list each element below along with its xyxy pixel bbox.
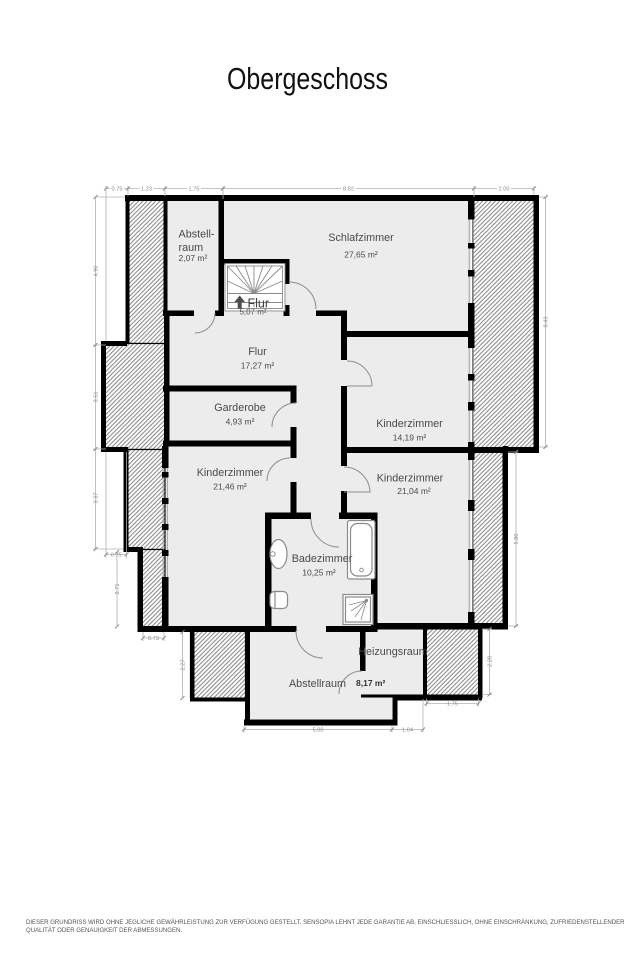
svg-text:8,17 m²: 8,17 m² [356, 678, 385, 688]
svg-text:Flur: Flur [248, 346, 267, 358]
svg-text:0.75: 0.75 [111, 553, 122, 559]
svg-text:17,27 m²: 17,27 m² [241, 361, 275, 371]
svg-text:2.27: 2.27 [181, 660, 187, 671]
svg-text:27,65 m²: 27,65 m² [344, 250, 378, 260]
svg-text:0.75: 0.75 [112, 187, 123, 193]
svg-text:5.00: 5.00 [313, 728, 324, 734]
svg-text:2.71: 2.71 [115, 584, 121, 595]
svg-text:Garderobe: Garderobe [214, 402, 266, 414]
svg-text:1.75: 1.75 [447, 702, 458, 708]
svg-text:14,19 m²: 14,19 m² [393, 433, 427, 443]
svg-text:Kinderzimmer: Kinderzimmer [197, 467, 264, 479]
svg-text:1.23: 1.23 [141, 187, 152, 193]
svg-text:Abstellraum: Abstellraum [289, 678, 346, 690]
svg-text:1.75: 1.75 [189, 187, 200, 193]
svg-text:5.80: 5.80 [514, 534, 520, 545]
svg-text:4.90: 4.90 [94, 266, 100, 277]
svg-text:Kinderzimmer: Kinderzimmer [377, 473, 444, 485]
svg-text:8.43: 8.43 [544, 317, 550, 328]
svg-text:21,04 m²: 21,04 m² [397, 486, 431, 496]
svg-text:5,07 m²: 5,07 m² [239, 308, 266, 317]
svg-text:2.00: 2.00 [499, 187, 510, 193]
svg-text:Abstell-: Abstell- [179, 229, 215, 241]
svg-text:Schlafzimmer: Schlafzimmer [328, 232, 394, 244]
svg-text:Badezimmer: Badezimmer [292, 553, 353, 565]
svg-text:0.73: 0.73 [148, 636, 159, 642]
svg-text:Heizungsraum: Heizungsraum [358, 646, 428, 658]
svg-text:QUALITÄT ODER GENAUIGKEIT DER: QUALITÄT ODER GENAUIGKEIT DER ABMESSUNGE… [26, 927, 182, 934]
svg-text:4,93 m²: 4,93 m² [226, 417, 255, 427]
svg-text:DIESER GRUNDRISS WIRD OHNE JEG: DIESER GRUNDRISS WIRD OHNE JEGLICHE GEWÄ… [26, 919, 625, 926]
svg-text:21,46 m²: 21,46 m² [213, 482, 247, 492]
svg-text:3.51: 3.51 [94, 392, 100, 403]
svg-text:8.82: 8.82 [343, 187, 354, 193]
svg-text:2,07 m²: 2,07 m² [179, 253, 208, 263]
svg-text:Kinderzimmer: Kinderzimmer [376, 418, 443, 430]
svg-text:3.37: 3.37 [94, 493, 100, 504]
svg-text:1.04: 1.04 [402, 728, 413, 734]
svg-text:10,25 m²: 10,25 m² [302, 568, 336, 578]
svg-text:Obergeschoss: Obergeschoss [227, 61, 388, 96]
svg-text:2.28: 2.28 [488, 656, 494, 667]
